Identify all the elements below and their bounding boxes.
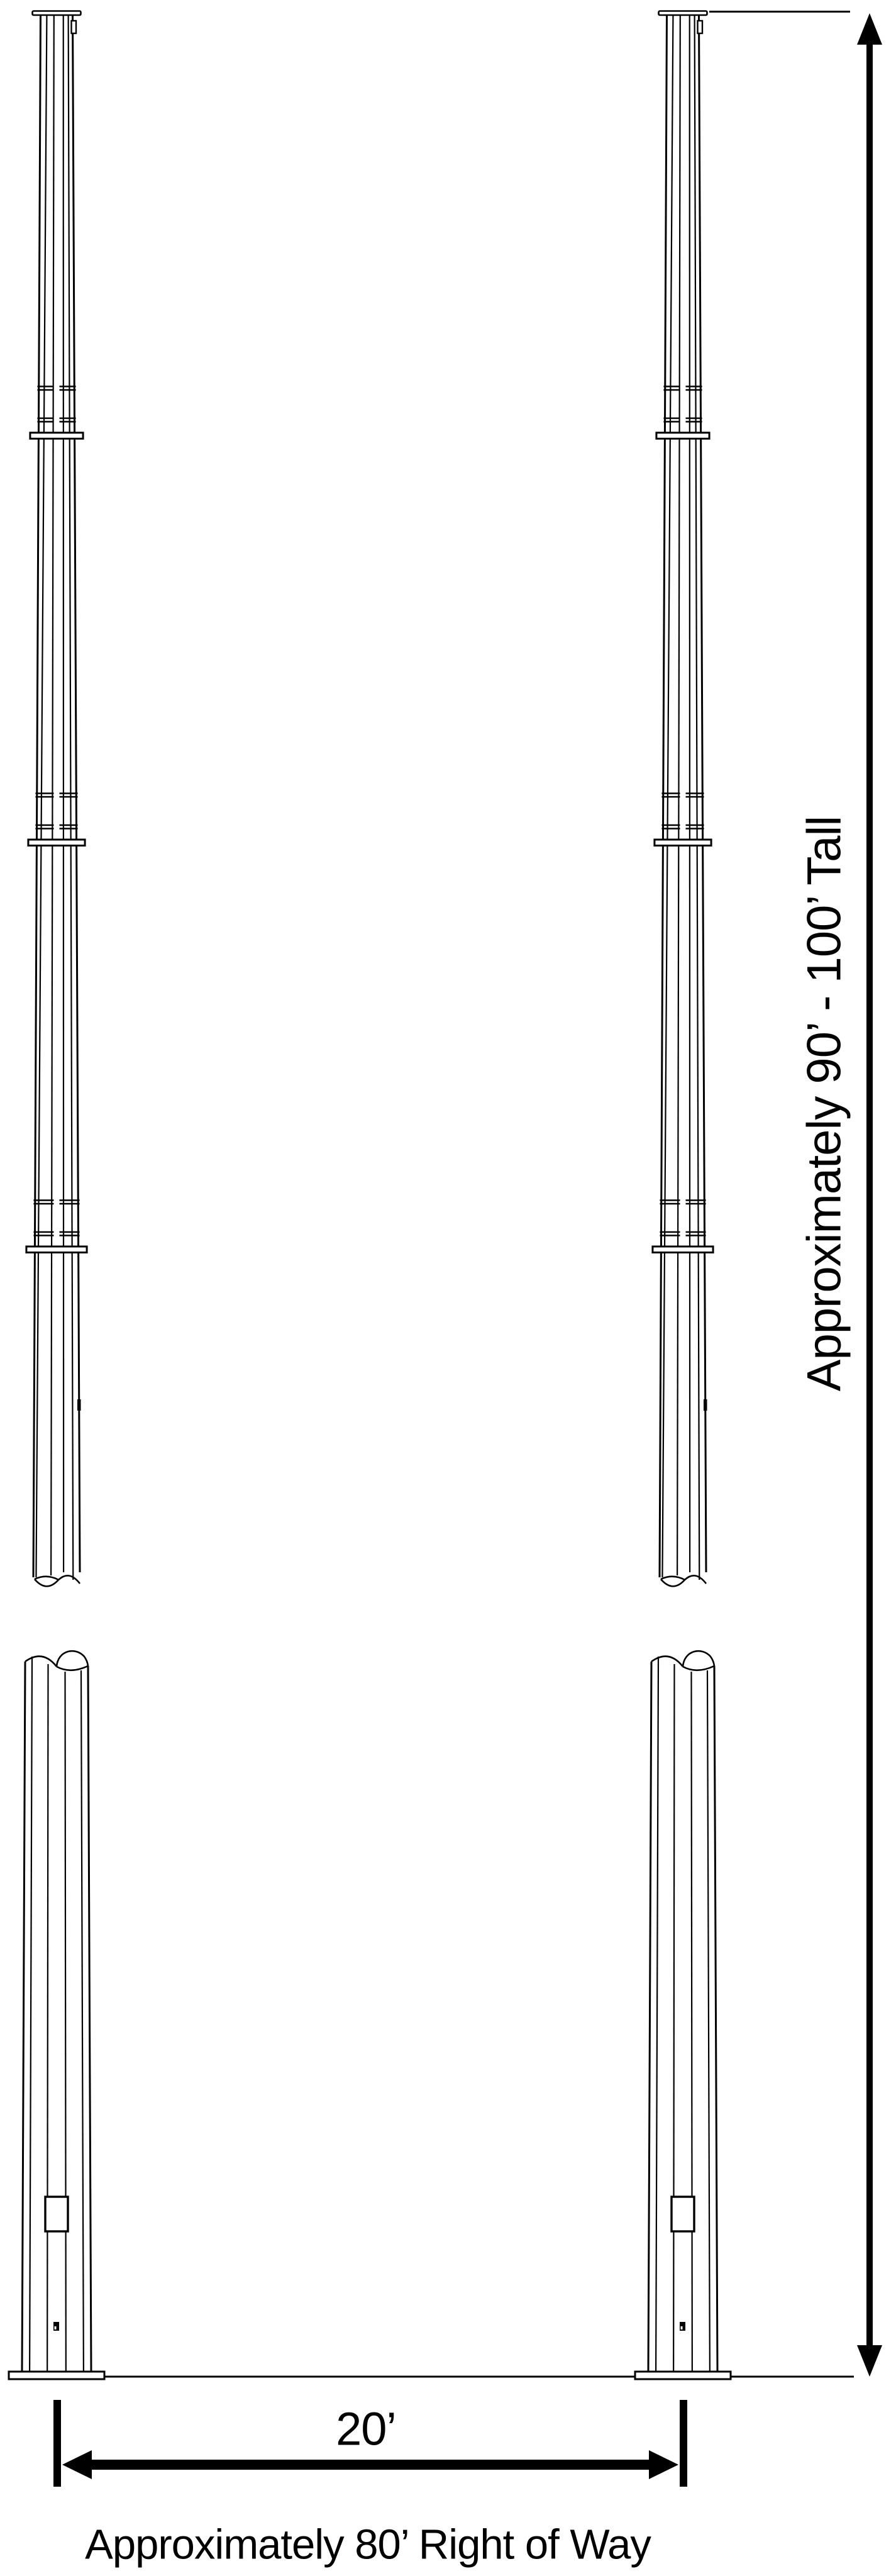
- base-plate: [635, 2372, 731, 2379]
- top-bracket-tab: [698, 21, 703, 33]
- slip-joint-collar: [653, 1246, 713, 1253]
- spacing-arrow-head-left: [62, 2450, 92, 2479]
- diagram-linework: [0, 0, 896, 2576]
- pole-facet-line: [692, 1672, 692, 2372]
- pole-facet-line: [673, 1664, 674, 2372]
- pole-edge-left: [22, 1662, 25, 2372]
- pole-top-cap: [659, 11, 707, 16]
- pole-facet-line: [65, 1672, 66, 2372]
- height-label: Approximately 90’ - 100’ Tall: [797, 816, 852, 1391]
- pole-edge-left: [648, 1662, 651, 2372]
- break-lens-top: [683, 1651, 714, 1667]
- top-bracket-tab: [72, 21, 77, 33]
- base-plate: [9, 2372, 104, 2379]
- pole-top-cap: [33, 11, 81, 16]
- break-curve-left: [25, 1657, 57, 1667]
- break-curve-left: [651, 1657, 683, 1667]
- right-of-way-label: Approximately 80’ Right of Way: [85, 2521, 651, 2569]
- break-curve-right: [685, 1575, 706, 1584]
- pole-facet-line: [47, 1664, 48, 2372]
- pole-facet-line: [677, 15, 680, 1575]
- right-pole: [635, 11, 731, 2380]
- pole-edge-right: [88, 1666, 91, 2372]
- break-lens-bottom: [683, 1666, 714, 1670]
- pole-facet-line: [81, 1670, 84, 2372]
- pole-facet-line: [656, 1657, 658, 2372]
- pole-height-diagram: Approximately 90’ - 100’ Tall 20’ Approx…: [0, 0, 896, 2576]
- side-bracket-tab: [704, 1399, 707, 1411]
- dimension-tick-left: [53, 2400, 61, 2487]
- spacing-arrow-shaft: [91, 2460, 650, 2470]
- pole-edge-right: [714, 1666, 717, 2372]
- height-arrow-head-bottom: [857, 2345, 882, 2377]
- break-lens-bottom: [57, 1666, 88, 1670]
- pole-facet-line: [30, 1657, 32, 2372]
- break-lens-top: [57, 1651, 88, 1667]
- slip-joint-collar: [656, 433, 709, 439]
- handhole: [672, 2197, 694, 2231]
- slip-joint-collar: [28, 840, 85, 846]
- pole-spacing-label: 20’: [336, 2402, 396, 2456]
- side-bracket-tab: [77, 1399, 81, 1411]
- spacing-arrow-head-right: [649, 2450, 678, 2479]
- break-lens-top: [661, 1577, 685, 1580]
- slip-joint-collar: [30, 433, 83, 439]
- break-lens-bottom: [35, 1579, 58, 1586]
- base-marker-notch: [55, 2326, 57, 2329]
- base-marker-notch: [681, 2326, 683, 2329]
- height-arrow-shaft: [866, 44, 873, 2346]
- pole-facet-line: [707, 1670, 710, 2372]
- break-lens-top: [35, 1577, 58, 1580]
- slip-joint-collar: [655, 840, 711, 846]
- height-arrow-head-top: [857, 13, 882, 45]
- pole-facet-line: [51, 15, 54, 1575]
- handhole: [45, 2197, 68, 2231]
- left-pole: [9, 11, 104, 2380]
- break-lens-bottom: [661, 1579, 685, 1586]
- break-curve-right: [58, 1575, 80, 1584]
- height-arrow: [857, 13, 882, 2377]
- dimension-tick-right: [680, 2400, 687, 2487]
- slip-joint-collar: [26, 1246, 87, 1253]
